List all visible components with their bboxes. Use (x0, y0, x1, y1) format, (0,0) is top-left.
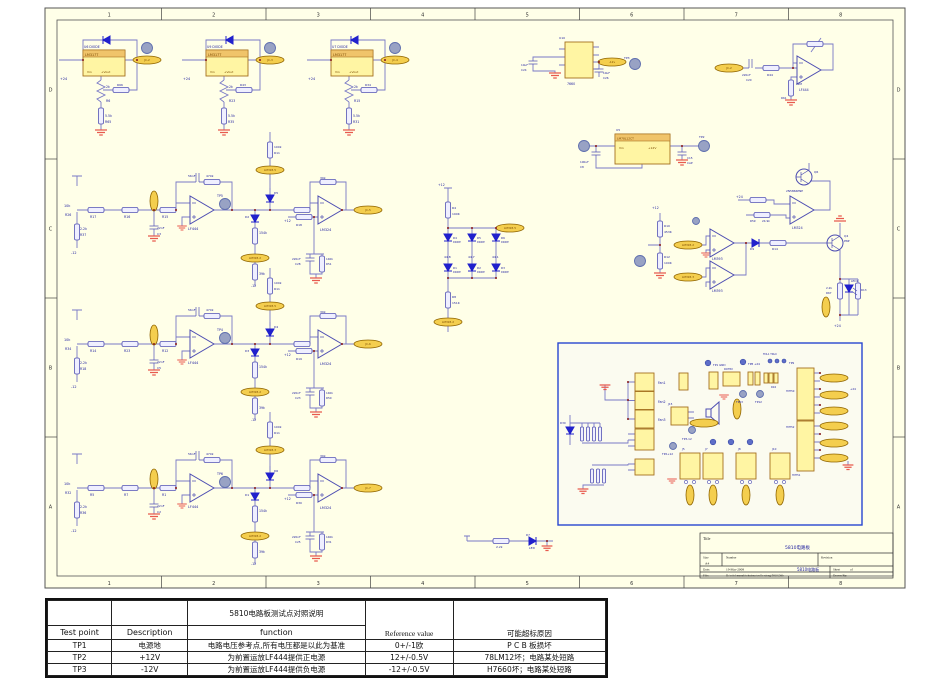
schematic-canvas[interactable]: 1122334455667788DDCCBBAA (0, 0, 950, 672)
schematic-label: D1 (245, 493, 249, 497)
schematic-label: 140k (326, 391, 333, 395)
schematic-label: C8 (580, 165, 584, 169)
schematic-label: U7 DIODE (332, 45, 348, 49)
schematic-label: Q4 (844, 234, 848, 238)
schematic-label: D7 (526, 533, 530, 537)
schematic-label: 100uF (580, 160, 589, 164)
ruler-label: 5 (526, 13, 529, 19)
schematic-label: 453K (664, 230, 673, 234)
titleblock-sheet-label: Sheet (833, 568, 840, 572)
schematic-label: R18 (80, 367, 86, 371)
schematic-label: LM393 (712, 289, 723, 293)
schematic-label: 220nF (292, 257, 301, 261)
schematic-label: J7 (704, 447, 708, 451)
schematic-label: D3 (245, 349, 249, 353)
schematic-label: +24 (308, 77, 315, 81)
table-header-function: function (188, 626, 365, 640)
ruler-label: 3 (317, 581, 320, 587)
schematic-label: D4 (274, 325, 278, 329)
schematic-label: C15 (687, 156, 693, 160)
schematic-label: LM393.2 (442, 320, 454, 324)
schematic-label: D2 (245, 215, 249, 219)
schematic-label: R18 (296, 223, 302, 227)
table-cell: 12+/-0.5V (365, 652, 453, 664)
ruler-label: A (49, 505, 53, 511)
schematic-label: +Vout (224, 70, 234, 74)
schematic-label: TP6 (216, 472, 223, 476)
schematic-label: 470k (206, 452, 214, 456)
schematic-label: D5 (477, 236, 481, 240)
ruler-label: 8 (839, 13, 842, 19)
schematic-label: R11 (274, 287, 280, 291)
schematic-label: 154k (259, 365, 267, 369)
schematic-label: LM324 (320, 506, 331, 510)
table-header-cause: 可能超标原因 (453, 601, 605, 640)
table-row: TP3-12V为前置运放LF444提供负电源-12+/-0.5VH7660坏；电… (48, 664, 606, 676)
pcb-connector-box[interactable] (558, 343, 862, 525)
ruler-label: B (897, 366, 901, 372)
schematic-label: 39k (259, 406, 265, 410)
titleblock-number-label: Number (726, 556, 737, 560)
table-cell: 电路电压参考点,所有电压都是以此为基准 (188, 640, 365, 652)
table-cell-empty (48, 601, 112, 626)
schematic-label: 22nF (157, 226, 165, 230)
schematic-label: TP13 (735, 400, 743, 404)
schematic-label: R31 (326, 540, 332, 544)
schematic-label: R30 (296, 501, 302, 505)
titleblock-title-label: Title (703, 536, 711, 541)
schematic-label: J8 (737, 447, 741, 451)
titleblock-date: 19-Mar-2008 (726, 568, 744, 572)
schematic-label: U10 (559, 36, 565, 40)
schematic-label: D5 (274, 191, 278, 195)
schematic-label: -12v (609, 60, 616, 64)
titleblock-file-label: File: (703, 574, 709, 578)
schematic-label: Q6 (814, 170, 818, 174)
ruler-label: 7 (735, 13, 738, 19)
schematic-label: 24.9k (762, 219, 770, 223)
schematic-label: J5 (681, 447, 685, 451)
schematic-label: Vin (87, 70, 92, 74)
schematic-label: +24 (834, 324, 841, 328)
schematic-label: D9 (750, 247, 754, 251)
schematic-label: +12 (284, 497, 291, 501)
schematic-label: 154k (259, 231, 267, 235)
table-cell: 电源地 (112, 640, 188, 652)
schematic-label: R13 (861, 288, 867, 292)
schematic-label: C24 (521, 68, 527, 72)
schematic-label: D30 (560, 421, 566, 425)
schematic-label: R4 (452, 206, 456, 210)
titleblock-doc-title: 5810电路板 (785, 544, 810, 551)
ruler-label: 7 (735, 581, 738, 587)
schematic-label: +Vout (101, 70, 111, 74)
schematic-label: JC-2 (143, 58, 150, 62)
schematic-label: LM317T (333, 53, 347, 57)
schematic-label: LF444 (188, 227, 198, 231)
schematic-label: R34 (365, 83, 371, 87)
schematic-label: JC-3 (266, 58, 273, 62)
schematic-label: 100K (664, 261, 673, 265)
schematic-label: R23 (124, 349, 130, 353)
schematic-label: 22nF (157, 360, 165, 364)
schematic-label: R12 (664, 255, 670, 259)
ruler-label: 5 (526, 581, 529, 587)
ruler-label: D (897, 88, 901, 94)
schematic-label: 10uF (603, 71, 610, 75)
schematic-label: R8 (452, 295, 456, 299)
schematic-label: R16 (124, 215, 130, 219)
schematic-label: R50 (326, 396, 332, 400)
schematic-label: LM393.5 (264, 168, 276, 172)
table-header-testpoint: Test point (48, 626, 112, 640)
schematic-label: U5 (616, 128, 620, 132)
schematic-label: J15 (667, 402, 673, 406)
schematic-label: +12 (652, 206, 659, 210)
schematic-label: U9 DIODE (207, 45, 223, 49)
schematic-label: +24 (60, 77, 67, 81)
schematic-label: TP5 (216, 194, 223, 198)
schematic-label: JC-2 (725, 66, 732, 70)
schematic-label: HYP52 (786, 425, 795, 429)
schematic-label: R26 (65, 213, 71, 217)
schematic-label: C5 (157, 366, 161, 370)
schematic-label: R6 (106, 99, 110, 103)
schematic-label: +24 (736, 195, 743, 199)
schematic-label: LM393.2 (249, 256, 261, 260)
schematic-label: -12 (71, 251, 77, 255)
ruler-label: 6 (630, 581, 633, 587)
schematic-label: D4 (453, 236, 457, 240)
schematic-label: 10k (64, 482, 70, 486)
schematic-label: 5.5k (105, 114, 112, 118)
schematic-label: TP8 +24 (747, 362, 760, 366)
schematic-label: D6 (274, 469, 278, 473)
schematic-label: LF444 (188, 505, 198, 509)
table-row: TP2+12V为前置运放LF444提供正电源12+/-0.5V78LM12坏；电… (48, 652, 606, 664)
table-cell: 为前置运放LF444提供正电源 (188, 652, 365, 664)
schematic-label: JC-7 (364, 486, 371, 490)
schematic-label: 12M (796, 82, 803, 86)
table-cell: 78LM12坏；电路某处短路 (453, 652, 605, 664)
schematic-label: 154k (259, 509, 267, 513)
schematic-label: R15 (162, 215, 168, 219)
schematic-label: 39k (320, 310, 326, 314)
schematic-label: 56nF (188, 174, 196, 178)
schematic-label: JC-6 (364, 342, 371, 346)
schematic-label: R16 (771, 385, 776, 389)
schematic-label: 5.5k (228, 114, 235, 118)
table-cell: H7660坏；电路某处短路 (453, 664, 605, 676)
schematic-label: R14 (772, 247, 778, 251)
schematic-label: J10 (771, 447, 777, 451)
schematic-label: 2k (106, 85, 110, 89)
schematic-label: 470k (206, 308, 214, 312)
schematic-label: +Vout (349, 70, 359, 74)
schematic-label: 10uF (521, 63, 528, 67)
titleblock-file: D:\colol manufa\chuiena teollo xiong\581… (726, 574, 784, 578)
schematic-label: C25 (295, 540, 301, 544)
schematic-label: TP2 (698, 135, 705, 139)
schematic-label: R44 (767, 73, 773, 77)
schematic-label: R59 (750, 219, 756, 223)
schematic-label: LM324 (320, 362, 331, 366)
schematic-label: C28 (295, 262, 301, 266)
schematic-label: Fan3 (658, 418, 666, 422)
titleblock-drawnby-label: Drawn By: (833, 574, 847, 578)
schematic-label: 39k (259, 272, 265, 276)
schematic-label: 44.7 (468, 255, 475, 259)
schematic-label: TP12 (754, 400, 762, 404)
schematic-label: 7660 (567, 82, 575, 86)
titleblock-doc-title-overlay: 5810电路板 (797, 566, 819, 572)
schematic-label: R66 (117, 83, 123, 87)
table-header-reference: Reference value (365, 601, 453, 640)
schematic-label: 2.2k (80, 505, 87, 509)
schematic-label: LM393.3 (682, 275, 694, 279)
table-cell: -12V (112, 664, 188, 676)
ruler-label: 6 (630, 13, 633, 19)
schematic-label: LM317T (85, 53, 99, 57)
schematic-label: Vin (335, 70, 340, 74)
schematic-label: DIODE (501, 271, 509, 274)
schematic-label: 39k (259, 550, 265, 554)
schematic-label: R1 (162, 493, 166, 497)
table-cell: TP3 (48, 664, 112, 676)
schematic-label: TP3 (623, 56, 630, 60)
schematic-label: Vin (210, 70, 215, 74)
schematic-label: Vin (619, 146, 624, 150)
schematic-label: 10k (64, 338, 70, 342)
titleblock-revision-label: Revision (821, 556, 833, 560)
table-cell: TP2 (48, 652, 112, 664)
schematic-label: LM393.2 (249, 390, 261, 394)
schematic-label: TP2+12 (661, 452, 673, 456)
ruler-label: 1 (108, 581, 111, 587)
schematic-label: 10k (64, 204, 70, 208)
schematic-label: LM393.2 (249, 534, 261, 538)
schematic-label: LF444 (188, 361, 198, 365)
schematic-label: LF444 (799, 88, 809, 92)
schematic-label: 140k (326, 257, 333, 261)
schematic-label: 151K (452, 301, 461, 305)
schematic-label: -12 (251, 562, 256, 566)
schematic-label: R51 (326, 262, 332, 266)
schematic-label: JC-4 (391, 58, 398, 62)
ruler-label: 2 (212, 13, 215, 19)
schematic-label: +12V (648, 146, 657, 150)
ruler-label: D (49, 88, 53, 94)
schematic-label: TP1 GND (712, 363, 725, 367)
schematic-label: JC-5 (364, 208, 371, 212)
schematic-label: 44.8 (444, 255, 451, 259)
schematic-label: R43 (240, 83, 246, 87)
schematic-label: -12 (251, 284, 256, 288)
schematic-label: 56nF (188, 308, 196, 312)
table-cell: P C B 板损坏 (453, 640, 605, 652)
schematic-label: LM324 (320, 228, 331, 232)
schematic-label: LM393.2 (682, 243, 694, 247)
table-title: 5810电路板测试点对照说明 (188, 601, 365, 626)
schematic-label: 190K (452, 212, 461, 216)
schematic-label: DIODE (501, 241, 509, 244)
schematic-label: R34 (65, 347, 71, 351)
schematic-label: R5 (90, 493, 94, 497)
schematic-label: R11 (274, 151, 280, 155)
schematic-label: 2.2k (496, 545, 503, 549)
schematic-label: LM324 (792, 226, 803, 230)
schematic-label: TP3-12 (681, 437, 692, 441)
schematic-label: R11 (274, 431, 280, 435)
schematic-label: D1 (453, 266, 457, 270)
ruler-label: 8 (839, 581, 842, 587)
schematic-label: 220nF (292, 535, 301, 539)
schematic-label: -12 (71, 529, 77, 533)
titleblock-size-label: Size (703, 556, 709, 560)
schematic-label: Fan2 (658, 400, 666, 404)
schematic-label: R15 (354, 99, 360, 103)
schematic-label: TDL1 TDL0 (763, 352, 777, 356)
table-cell: +12V (112, 652, 188, 664)
schematic-label: R31 (353, 120, 359, 124)
schematic-label: R10 (664, 224, 670, 228)
schematic-label: -12 (71, 385, 77, 389)
schematic-label: Fan1 (658, 381, 666, 385)
schematic-label: CAP (687, 161, 693, 165)
schematic-label: +12 (438, 183, 445, 187)
table-cell: 0+/-1欧 (365, 640, 453, 652)
schematic-label: 220nF (742, 73, 751, 77)
schematic-label: 39k (320, 176, 326, 180)
schematic-label: LED1 (851, 279, 858, 283)
schematic-label: R19 (296, 357, 302, 361)
schematic-label: +12 (284, 219, 291, 223)
schematic-label: +12 (284, 353, 291, 357)
schematic-label: 2k (354, 85, 358, 89)
schematic-label: ROT8X (724, 367, 733, 371)
schematic-label: TP4 (216, 328, 223, 332)
schematic-label: R7 (124, 493, 128, 497)
schematic-label: LM317T (208, 53, 222, 57)
schematic-label: 140k (326, 535, 333, 539)
schematic-label: C26 (603, 76, 609, 80)
schematic-label: R67 (826, 291, 832, 295)
ruler-label: 3 (317, 13, 320, 19)
schematic-label: 470k (206, 174, 214, 178)
schematic-label: DIODE (453, 241, 461, 244)
testpoint-table: 5810电路板测试点对照说明 Reference value 可能超标原因 Te… (45, 598, 608, 678)
schematic-label: 100k (274, 145, 282, 149)
schematic-label: LED (529, 546, 536, 550)
schematic-label: +24 (183, 77, 190, 81)
schematic-label: LM393 (712, 257, 723, 261)
schematic-label: D6 (501, 236, 505, 240)
schematic-label: C2 (157, 510, 161, 514)
schematic-label: R17 (90, 215, 96, 219)
schematic-label: D3 (501, 266, 505, 270)
schematic-label: 39k (320, 454, 326, 458)
schematic-label: PNP (844, 239, 850, 243)
titleblock-size: A4 (705, 562, 709, 566)
schematic-label: 220nF (292, 391, 301, 395)
schematic-label: 100k (274, 425, 282, 429)
schematic-label: R32 (65, 491, 71, 495)
schematic-label: 44.1 (492, 255, 499, 259)
schematic-label: LM393.3 (264, 448, 276, 452)
screenshot-root: { "sheet": { "cols": ["1","2","3","4","5… (0, 0, 950, 672)
schematic-label: -12 (251, 418, 256, 422)
schematic-label: R36 (80, 511, 86, 515)
schematic-label: LM393.5 (264, 304, 276, 308)
table-cell: -12+/-0.5V (365, 664, 453, 676)
schematic-label: 2k (229, 85, 233, 89)
table-cell: TP1 (48, 640, 112, 652)
ruler-label: A (897, 505, 901, 511)
schematic-label: 2.2k (80, 227, 87, 231)
schematic-label: 2.2k (80, 361, 87, 365)
schematic-label: 100k (274, 281, 282, 285)
schematic-label: DIODE (477, 241, 485, 244)
ruler-label: C (49, 227, 53, 233)
ruler-label: C (897, 227, 901, 233)
schematic-label: D2 (477, 266, 481, 270)
schematic-label: HYP50 (786, 389, 795, 393)
schematic-label: R14 (90, 349, 96, 353)
titleblock-date-label: Date: (703, 568, 710, 572)
schematic-label: C3 (157, 232, 161, 236)
schematic-label: C20 (746, 78, 752, 82)
schematic-label: C23 (295, 396, 301, 400)
table-cell-empty (112, 601, 188, 626)
schematic-label: R37 (80, 233, 86, 237)
table-row: TP1电源地电路电压参考点,所有电压都是以此为基准0+/-1欧P C B 板损坏 (48, 640, 606, 652)
ruler-label: 4 (421, 581, 424, 587)
schematic-label: R12 (162, 349, 168, 353)
ruler-label: B (49, 366, 53, 372)
schematic-label: 22nF (157, 504, 165, 508)
table-header-description: Description (112, 626, 188, 640)
schematic-label: DIODE (477, 271, 485, 274)
schematic-label: 2.2k (826, 286, 832, 290)
schematic-label: TP9 (788, 361, 794, 365)
schematic-label: R35 (228, 120, 234, 124)
schematic-label: 5.5k (353, 114, 360, 118)
schematic-label: R65 (105, 120, 111, 124)
schematic-label: U6 DIODE (84, 45, 100, 49)
schematic-label: DIODE (453, 271, 461, 274)
ruler-label: 2 (212, 581, 215, 587)
schematic-label: 56nF (188, 452, 196, 456)
schematic-label: LM78L12CT (617, 137, 634, 141)
schematic-label: R23 (229, 99, 235, 103)
schematic-label: +24 (850, 387, 856, 391)
ruler-label: 4 (421, 13, 424, 19)
ruler-label: 1 (108, 13, 111, 19)
table-cell: 为前置运放LF444提供负电源 (188, 664, 365, 676)
schematic-label: HYP51 (792, 473, 801, 477)
schematic-label: R61 (781, 96, 787, 100)
schematic-label: 2N5866PNP (786, 189, 803, 193)
schematic-label: LM393.5 (504, 226, 516, 230)
